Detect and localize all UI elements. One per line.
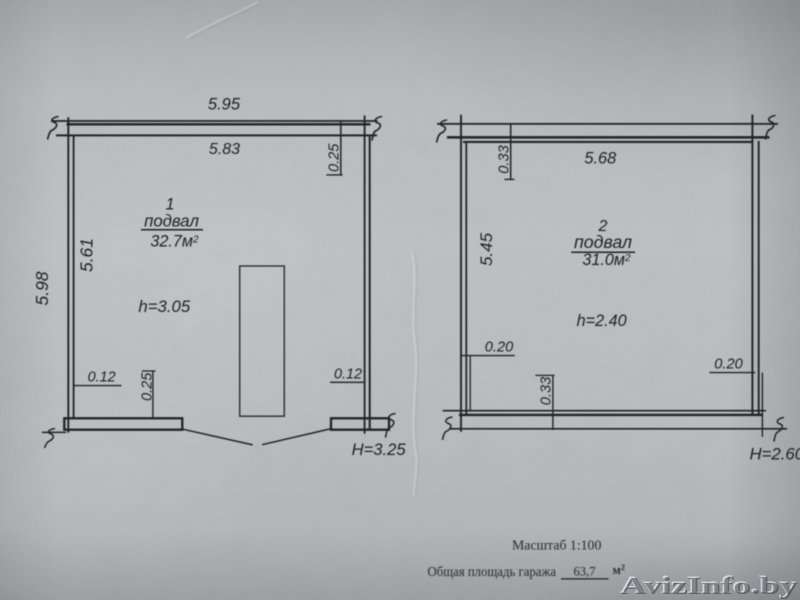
svg-text:0.12: 0.12 xyxy=(334,366,362,382)
svg-text:5.68: 5.68 xyxy=(584,149,617,167)
svg-text:5.83: 5.83 xyxy=(209,141,240,158)
svg-text:0.20: 0.20 xyxy=(485,339,513,355)
svg-text:0.12: 0.12 xyxy=(88,369,116,385)
svg-text:0.33: 0.33 xyxy=(496,145,512,173)
svg-text:5.45: 5.45 xyxy=(477,232,496,266)
svg-text:0.25: 0.25 xyxy=(140,372,156,401)
svg-text:63,7: 63,7 xyxy=(573,565,595,579)
svg-text:0.33: 0.33 xyxy=(538,377,554,405)
svg-text:5.95: 5.95 xyxy=(208,95,241,114)
svg-text:подвал: подвал xyxy=(144,212,199,231)
svg-text:h=2.40: h=2.40 xyxy=(577,312,627,330)
svg-text:Общая площадь гаража: Общая площадь гаража xyxy=(428,564,557,579)
svg-text:H=3.25: H=3.25 xyxy=(352,440,407,459)
svg-text:0.20: 0.20 xyxy=(714,356,742,372)
svg-text:32.7м2: 32.7м2 xyxy=(150,233,199,251)
svg-text:5.61: 5.61 xyxy=(77,238,97,272)
svg-text:0.25: 0.25 xyxy=(327,143,343,172)
svg-text:h=3.05: h=3.05 xyxy=(138,297,190,316)
svg-text:подвал: подвал xyxy=(574,232,632,252)
svg-text:Масштаб 1:100: Масштаб 1:100 xyxy=(512,538,601,553)
svg-text:31.0м2: 31.0м2 xyxy=(582,251,631,269)
svg-text:AvizInfo.by: AvizInfo.by xyxy=(621,574,798,600)
svg-text:5.98: 5.98 xyxy=(32,271,52,305)
svg-text:H=2.60: H=2.60 xyxy=(750,444,800,463)
